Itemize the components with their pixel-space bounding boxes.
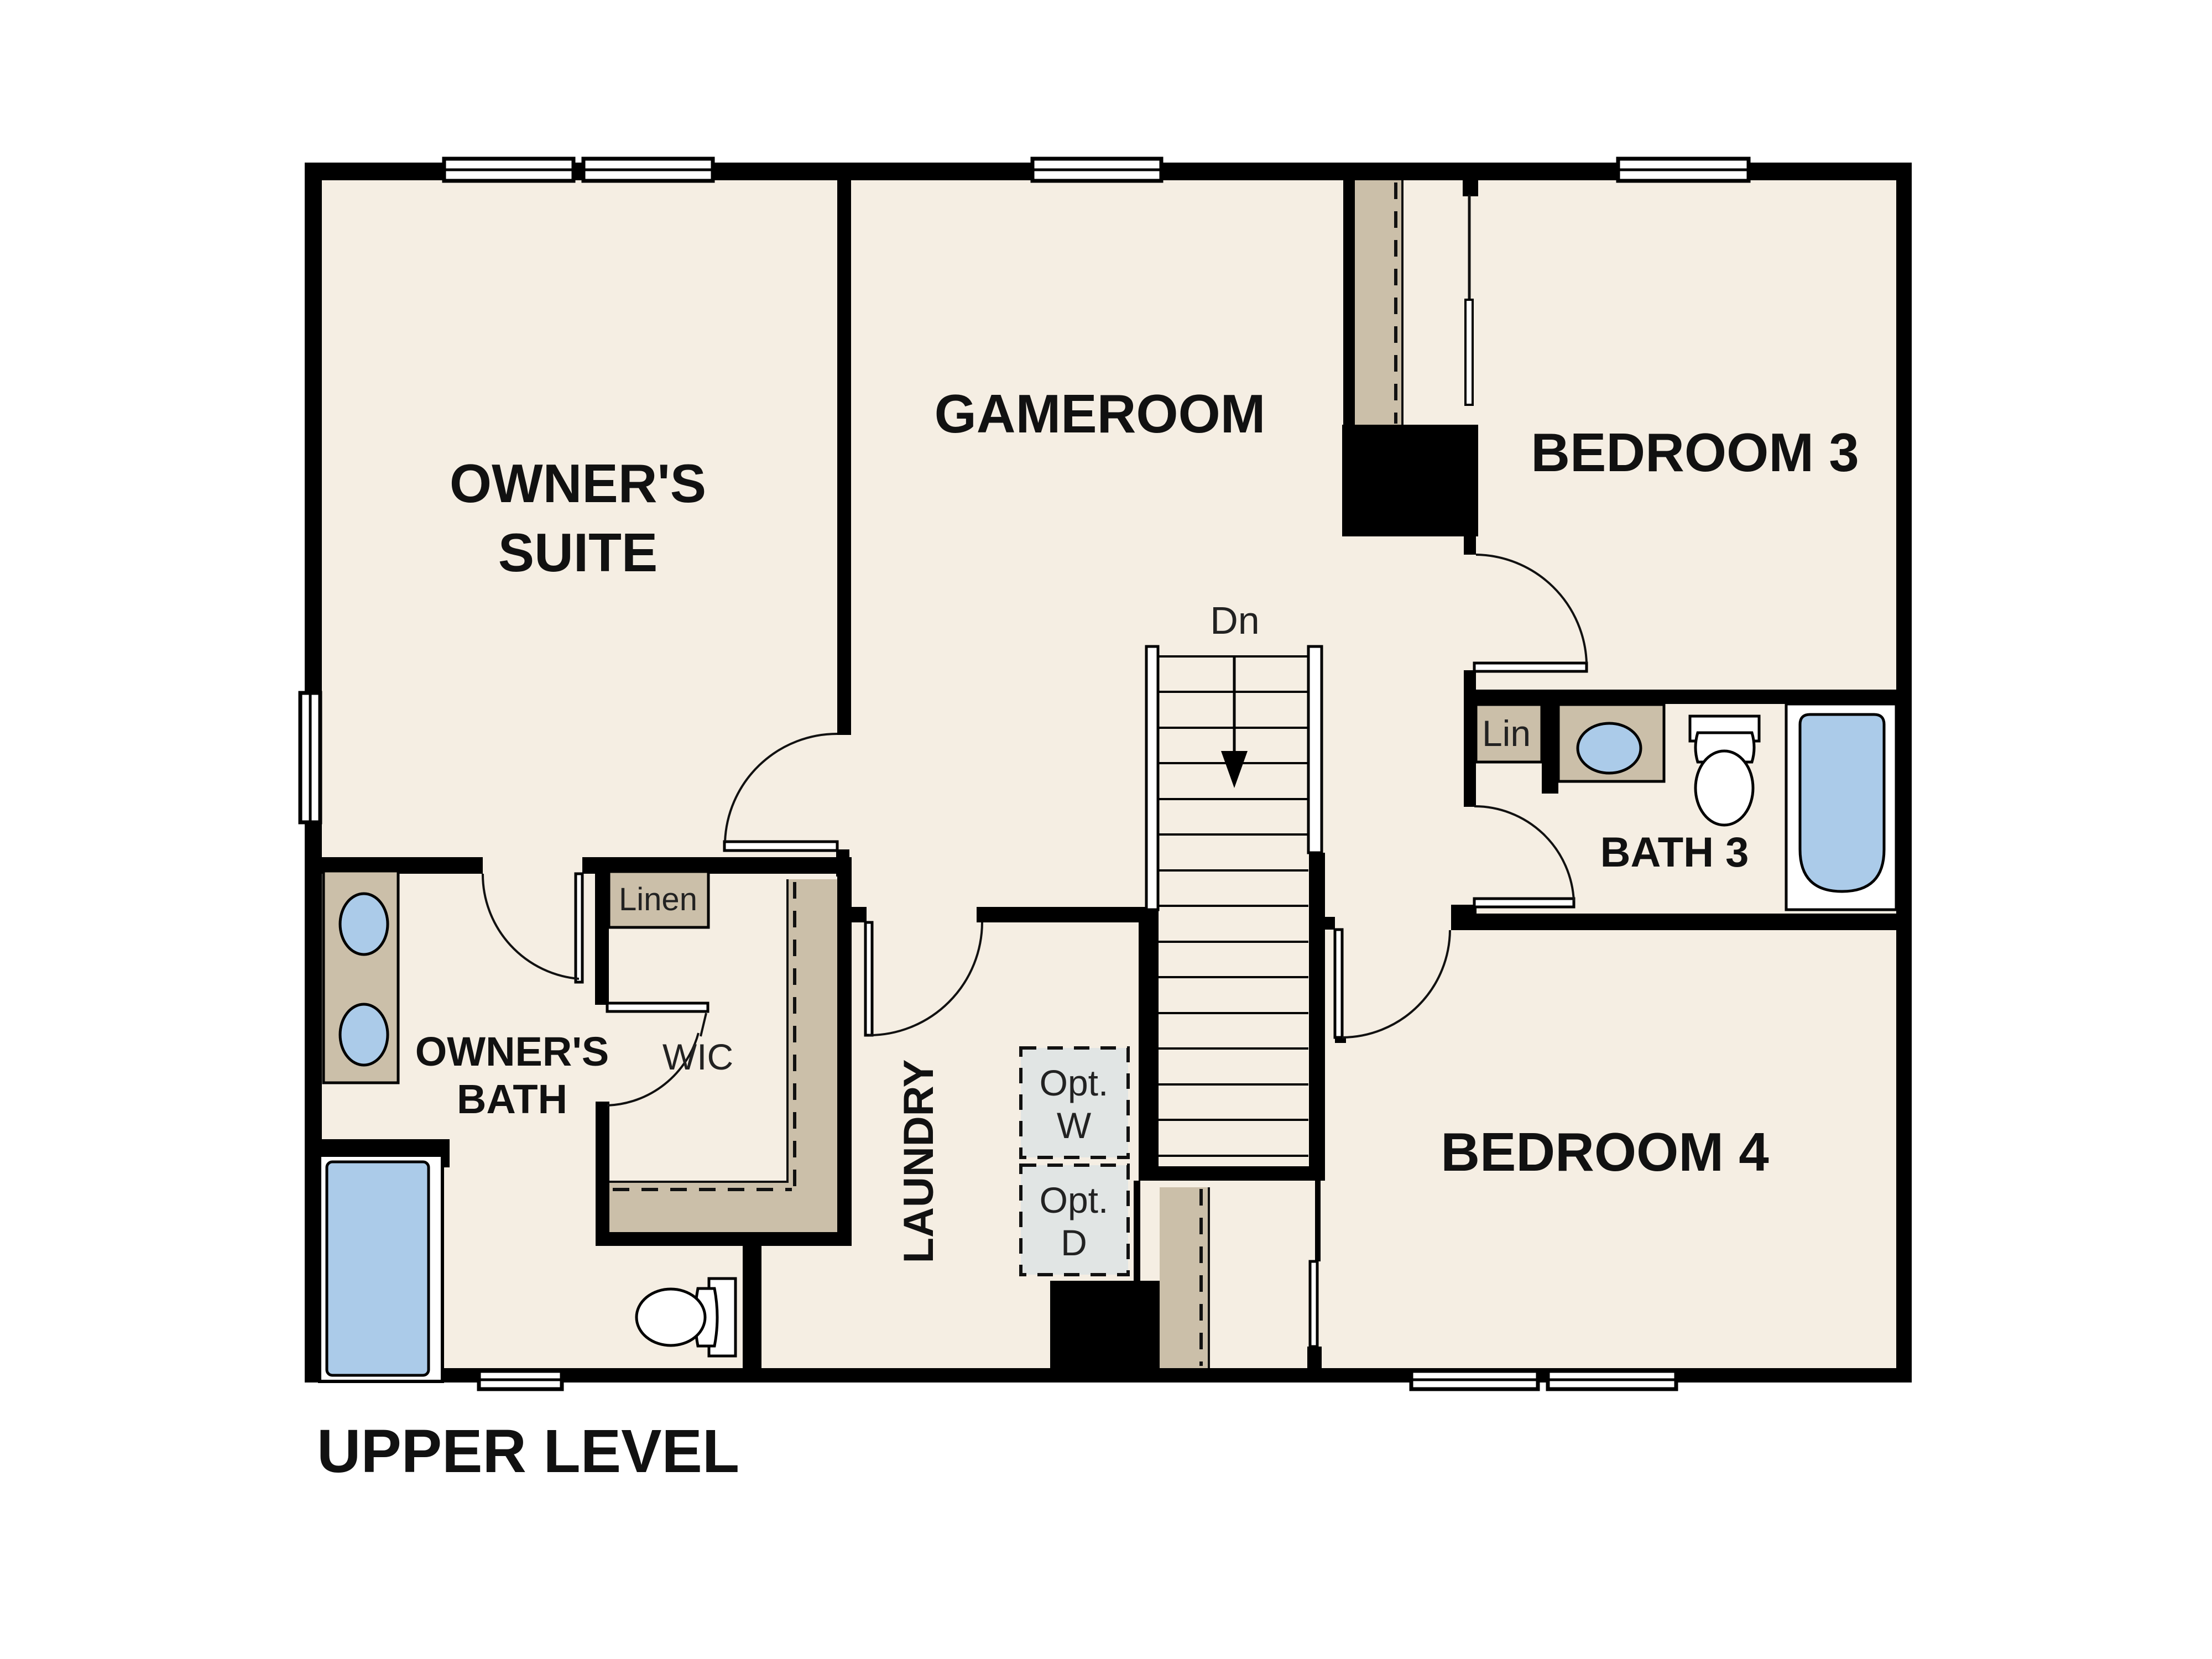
svg-text:LAUNDRY: LAUNDRY bbox=[895, 1060, 942, 1264]
svg-text:WIC: WIC bbox=[662, 1036, 733, 1077]
svg-text:Lin: Lin bbox=[1482, 713, 1531, 754]
svg-text:Dn: Dn bbox=[1210, 599, 1259, 642]
svg-text:SUITE: SUITE bbox=[498, 522, 658, 583]
svg-text:OWNER'S: OWNER'S bbox=[415, 1029, 609, 1074]
svg-text:Opt.: Opt. bbox=[1040, 1180, 1109, 1220]
svg-text:BATH 3: BATH 3 bbox=[1600, 829, 1749, 876]
svg-text:BEDROOM 3: BEDROOM 3 bbox=[1531, 422, 1859, 483]
svg-text:Opt.: Opt. bbox=[1040, 1062, 1109, 1103]
svg-text:UPPER LEVEL: UPPER LEVEL bbox=[317, 1417, 739, 1485]
svg-text:BEDROOM 4: BEDROOM 4 bbox=[1441, 1121, 1769, 1182]
svg-text:W: W bbox=[1057, 1105, 1092, 1146]
svg-text:OWNER'S: OWNER'S bbox=[450, 453, 706, 514]
svg-text:GAMEROOM: GAMEROOM bbox=[935, 383, 1266, 444]
svg-text:D: D bbox=[1061, 1222, 1087, 1263]
svg-text:BATH: BATH bbox=[457, 1076, 567, 1122]
svg-text:Linen: Linen bbox=[619, 881, 697, 917]
